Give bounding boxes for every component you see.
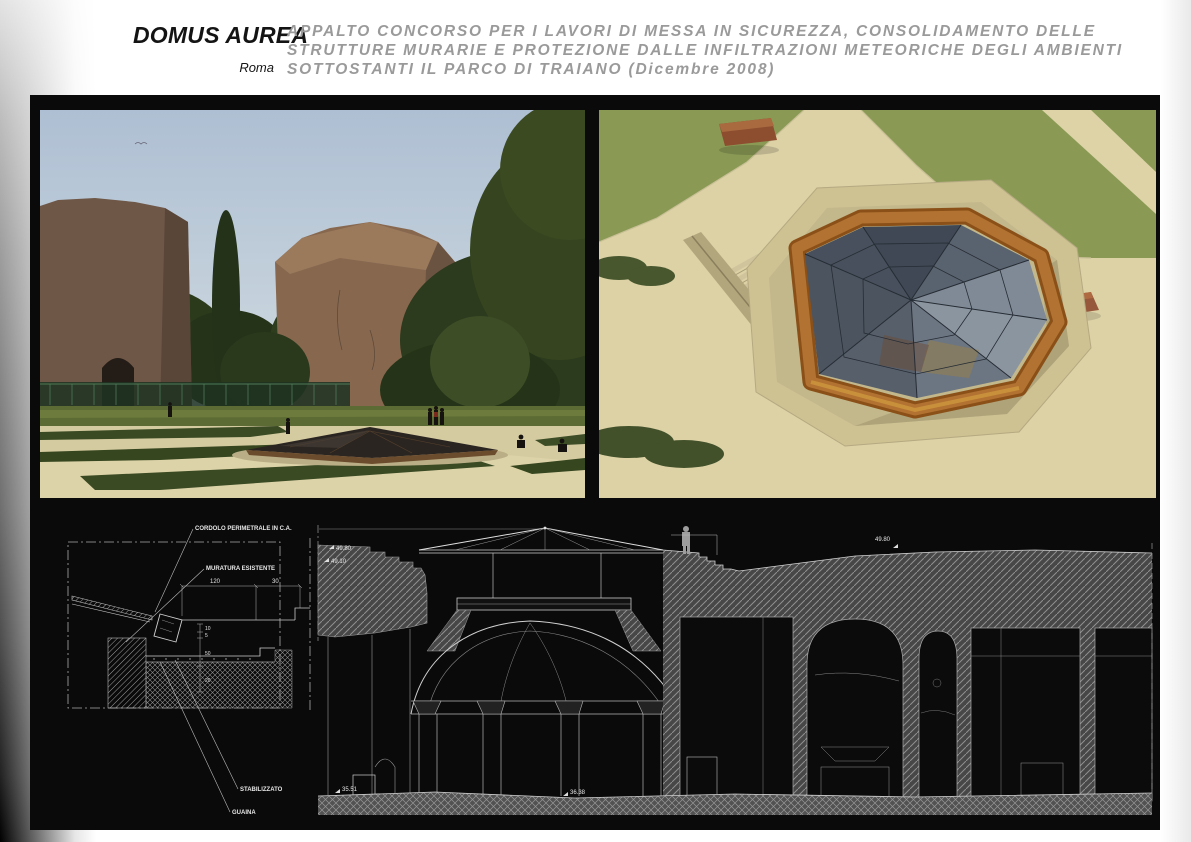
project-city: Roma: [239, 60, 274, 75]
dim-v2: 5: [205, 633, 208, 639]
level-left-upper: 49.80: [336, 546, 352, 552]
page-edge-right-shade: [1161, 0, 1191, 842]
cordolo-box: [154, 614, 182, 642]
dim-30: 30: [272, 579, 279, 585]
portfolio-page: DOMUS AUREA Roma APPALTO CONCORSO PER I …: [0, 0, 1191, 842]
left-ruin-wall: [40, 198, 192, 410]
presentation-board: 120 30 10 5 50 20: [30, 95, 1160, 830]
board-title: APPALTO CONCORSO PER I LAVORI DI MESSA I…: [287, 22, 1177, 79]
board-title-line-2: STRUTTURE MURARIE E PROTEZIONE DALLE INF…: [287, 41, 1177, 60]
existing-masonry-hatch: [108, 638, 146, 708]
brick-bench-top: [719, 118, 779, 155]
detail-illustration: 120 30 10 5 50 20: [60, 520, 320, 820]
level-floor-center: 36.38: [570, 790, 586, 796]
photomontage-park-view: [40, 110, 585, 498]
render-aerial-skylight: [599, 110, 1156, 498]
level-right-ground: 49.80: [875, 537, 891, 543]
label-muratura: MURATURA ESISTENTE: [206, 566, 275, 572]
render-illustration: [599, 110, 1156, 498]
label-stabilizzato: STABILIZZATO: [240, 787, 283, 793]
wall-profile: [182, 608, 310, 620]
dim-120: 120: [210, 579, 221, 585]
skylight-supports: [493, 553, 601, 598]
sloped-glazing: [72, 596, 152, 622]
section-illustration: 49.80 49.10 49.80 35.51 36.38: [315, 523, 1155, 823]
glass-pyramid: [805, 225, 1047, 398]
person-silhouette: [682, 526, 690, 554]
label-guaina: GUAINA: [232, 810, 256, 816]
cover-slab: [427, 598, 661, 651]
photomontage-illustration: [40, 110, 585, 498]
floor-and-ground: [146, 648, 292, 708]
left-lower-rooms: [328, 629, 410, 795]
dim-v1: 10: [205, 626, 211, 632]
label-cordolo: CORDOLO PERIMETRALE IN C.A.: [195, 526, 292, 532]
skylight-pyramid: [419, 527, 663, 553]
board-title-line-3: SOTTOSTANTI IL PARCO DI TRAIANO (Dicembr…: [287, 60, 1177, 79]
level-left-lower: 49.10: [331, 559, 347, 565]
board-title-line-1: APPALTO CONCORSO PER I LAVORI DI MESSA I…: [287, 22, 1177, 41]
construction-detail-drawing: 120 30 10 5 50 20: [60, 520, 320, 820]
site-fence: [40, 382, 350, 406]
project-brand: DOMUS AUREA Roma: [133, 22, 279, 49]
level-floor-left: 35.51: [342, 787, 358, 793]
architectural-section-drawing: 49.80 49.10 49.80 35.51 36.38: [315, 523, 1155, 823]
project-title: DOMUS AUREA: [133, 22, 279, 49]
